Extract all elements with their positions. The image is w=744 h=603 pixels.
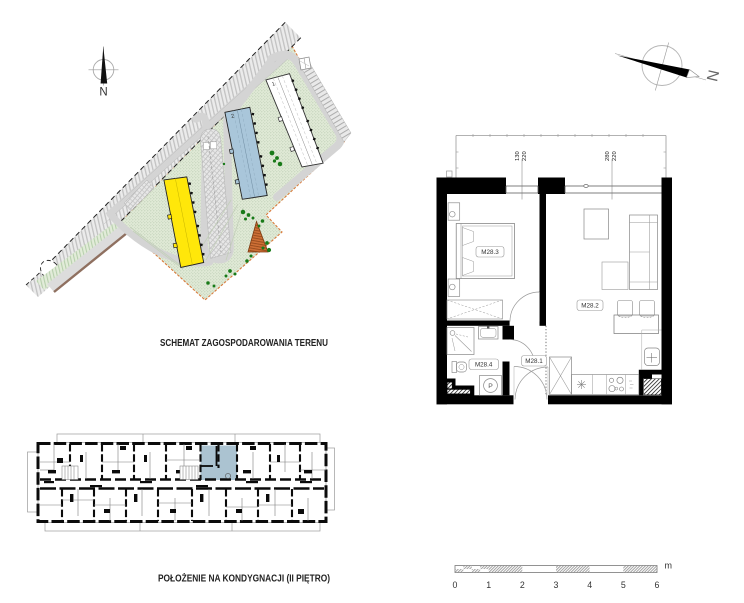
svg-text:POŁOŻENIE NA KONDYGNACJI (II P: POŁOŻENIE NA KONDYGNACJI (II PIĘTRO) xyxy=(158,572,330,585)
svg-text:M28.3: M28.3 xyxy=(481,249,499,256)
svg-text:2: 2 xyxy=(520,580,525,590)
svg-text:M28.2: M28.2 xyxy=(581,303,599,310)
svg-text:1: 1 xyxy=(486,580,491,590)
svg-text:0: 0 xyxy=(453,580,458,590)
svg-text:P: P xyxy=(488,383,493,390)
svg-text:280: 280 xyxy=(605,151,611,161)
svg-text:M28.1: M28.1 xyxy=(525,358,543,365)
svg-text:130: 130 xyxy=(515,151,521,161)
svg-text:6: 6 xyxy=(655,580,660,590)
svg-text:220: 220 xyxy=(522,151,528,161)
svg-text:5: 5 xyxy=(621,580,626,590)
svg-text:220: 220 xyxy=(612,151,618,161)
svg-text:4: 4 xyxy=(587,580,592,590)
svg-text:SCHEMAT ZAGOSPODAROWANIA TEREN: SCHEMAT ZAGOSPODAROWANIA TERENU xyxy=(160,338,328,349)
svg-text:3: 3 xyxy=(554,580,559,590)
svg-text:M28.4: M28.4 xyxy=(475,362,493,369)
svg-text:N: N xyxy=(99,87,107,99)
svg-text:m: m xyxy=(665,561,673,571)
